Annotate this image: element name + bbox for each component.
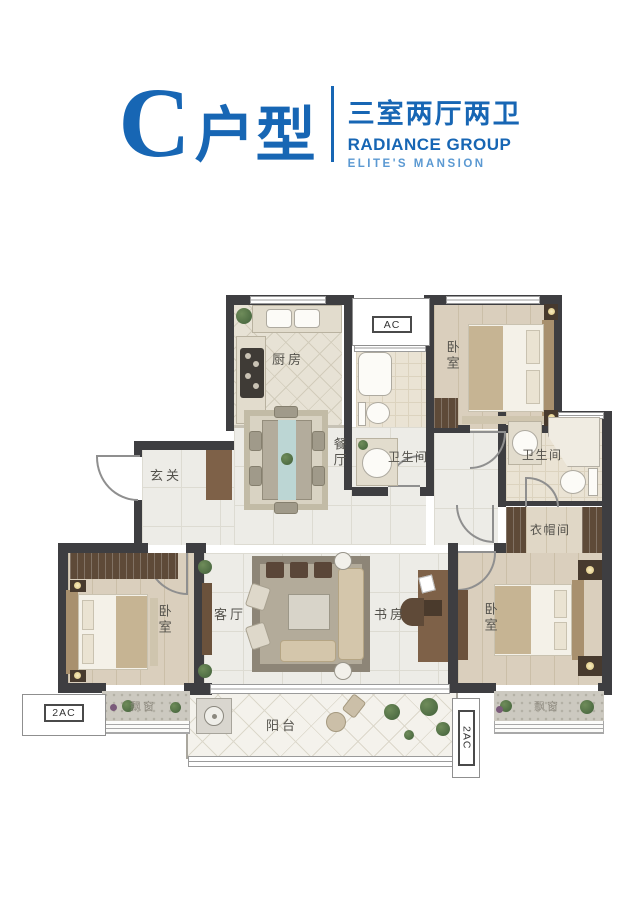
toilet — [560, 470, 586, 494]
dining-chair — [249, 466, 262, 486]
stove — [240, 348, 264, 398]
plant — [384, 704, 400, 720]
room-label-bathroom-main: 卫生间 — [388, 450, 429, 464]
side-table — [334, 552, 352, 570]
ac-label-top: AC — [372, 316, 412, 333]
stove-burner — [245, 373, 251, 379]
desk-monitor — [424, 600, 442, 616]
bay-window-right-sill — [494, 721, 604, 734]
door-arc-entry — [96, 457, 138, 501]
lamp — [548, 308, 555, 315]
plant — [436, 722, 450, 736]
room-label-entry: 玄关 — [150, 468, 182, 484]
dining-chair — [249, 431, 262, 451]
room-label-bedroom-left: 卧室 — [156, 604, 172, 636]
floor-plan: AC 2AC 2AC — [0, 0, 640, 920]
window — [250, 296, 326, 304]
dining-chair — [312, 466, 325, 486]
room-label-bedroom-right: 卧室 — [482, 602, 498, 634]
room-label-cloakroom: 衣帽间 — [530, 523, 571, 537]
plant — [404, 730, 414, 740]
door-leaf — [525, 477, 527, 507]
lamp — [586, 566, 594, 574]
wall-segment — [58, 683, 106, 693]
room-label-living: 客厅 — [214, 607, 246, 623]
wall-segment — [448, 543, 458, 553]
kitchen-sink-bowl — [266, 309, 292, 328]
plant — [170, 702, 181, 713]
tv-console — [458, 590, 468, 660]
bed-headboard — [66, 590, 78, 674]
plant — [580, 700, 594, 714]
plant — [198, 560, 212, 574]
kitchen-sink-bowl — [294, 309, 320, 328]
stove-burner — [253, 361, 259, 367]
wardrobe — [434, 398, 458, 428]
bay-window-left-sill — [102, 721, 190, 734]
plant — [420, 698, 438, 716]
bed-headboard — [572, 580, 584, 660]
wardrobe — [70, 553, 178, 579]
ac-label-left: 2AC — [44, 704, 84, 722]
pillow — [526, 370, 540, 404]
dining-chair — [274, 406, 298, 418]
room-label-bathroom-master: 卫生间 — [522, 448, 563, 462]
pillow — [554, 622, 567, 650]
door-leaf — [492, 505, 494, 543]
blanket — [495, 586, 531, 654]
wall-segment — [420, 487, 434, 496]
label-bay-window-right: 飘窗 — [534, 698, 560, 714]
dining-chair — [312, 431, 325, 451]
toilet-tank — [358, 402, 366, 426]
toilet-tank — [588, 468, 598, 496]
stool — [266, 562, 284, 578]
plant — [496, 706, 503, 713]
toilet — [366, 402, 390, 424]
room-label-bedroom-top-right: 卧室 — [444, 340, 460, 372]
wall-segment — [226, 295, 234, 431]
ac-label-right: 2AC — [458, 710, 475, 766]
dining-chair — [274, 502, 298, 514]
wall-segment — [134, 500, 142, 545]
plant — [110, 704, 117, 711]
stove-burner — [253, 383, 259, 389]
wardrobe — [506, 507, 526, 553]
wall-segment — [448, 543, 458, 693]
balcony-window — [188, 756, 456, 767]
coffee-table — [288, 594, 330, 630]
door-leaf — [458, 551, 496, 553]
washer-knob — [212, 714, 217, 719]
plant — [236, 308, 252, 324]
lamp — [74, 582, 81, 589]
wall-segment — [58, 543, 148, 553]
side-table — [334, 662, 352, 680]
label-bay-window-left: 飘窗 — [130, 698, 156, 714]
blanket — [116, 596, 147, 668]
wall-segment — [602, 411, 612, 695]
room-label-dining: 餐厅 — [331, 437, 347, 469]
bathtub — [358, 352, 392, 396]
plant — [358, 440, 368, 450]
balcony-table — [326, 712, 346, 732]
room-label-kitchen: 厨房 — [272, 352, 304, 368]
stool — [290, 562, 308, 578]
blanket — [469, 326, 503, 410]
wall-segment — [498, 411, 506, 507]
pillow — [82, 600, 94, 630]
room-label-study: 书房 — [374, 607, 406, 623]
door-leaf — [186, 553, 188, 595]
wall-segment — [448, 683, 496, 693]
plant — [198, 664, 212, 678]
wall-segment — [352, 487, 388, 496]
pillow — [554, 590, 567, 618]
pillow — [526, 330, 540, 364]
stool — [314, 562, 332, 578]
wall-segment — [134, 441, 234, 450]
pillow — [82, 634, 94, 664]
tv-console — [202, 583, 212, 655]
entry-cabinet — [206, 450, 232, 500]
loveseat — [280, 640, 336, 662]
door-leaf — [470, 431, 506, 433]
table-centerpiece — [281, 453, 293, 465]
lamp — [74, 672, 81, 679]
room-label-balcony: 阳台 — [266, 718, 298, 734]
window — [446, 296, 540, 304]
door-leaf — [96, 455, 140, 457]
wardrobe — [582, 507, 602, 553]
stove-burner — [245, 353, 251, 359]
lamp — [586, 662, 594, 670]
sliding-door-window — [210, 684, 450, 694]
sofa — [338, 568, 364, 660]
